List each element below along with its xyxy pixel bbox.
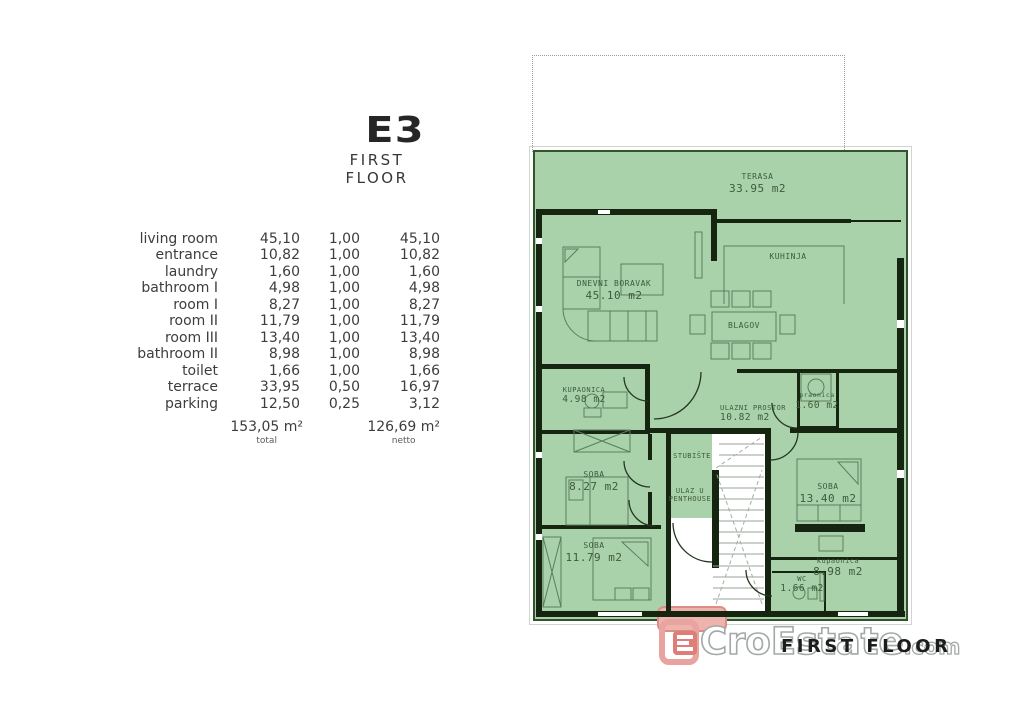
row-name: room III	[58, 330, 218, 346]
floor-title: FIRST FLOOR	[322, 151, 432, 187]
row-name: laundry	[58, 264, 218, 280]
room-label-ulaz-u-penthouse: ULAZ U PENTHOUSE	[662, 487, 718, 504]
watermark-floor-overlay: FIRST FLOOR	[781, 636, 951, 657]
room-label-soba-2: SOBA 11.79 m2	[559, 541, 629, 564]
croestate-watermark: CroEstate.com FIRST FLOOR	[655, 612, 1024, 672]
row-name: toilet	[58, 363, 218, 379]
row-name: terrace	[58, 379, 218, 395]
row-name: room II	[58, 313, 218, 329]
roof-outline-dotted	[532, 55, 845, 152]
row-name: entrance	[58, 247, 218, 263]
total-area: 153,05 m² total	[230, 419, 303, 446]
page: E3 FIRST FLOOR living room45,101,0045,10…	[0, 0, 1024, 724]
room-label-soba-1: SOBA 8.27 m2	[559, 470, 629, 493]
row-name: bathroom II	[58, 346, 218, 362]
row-name: bathroom I	[58, 280, 218, 296]
room-label-stubiste: STUBIŠTE	[664, 452, 720, 460]
room-label-dnevni-boravak: DNEVNI BORAVAK 45.10 m2	[563, 279, 665, 302]
room-label-praonica: praonica 1.60 m2	[794, 392, 840, 411]
row-name: parking	[58, 396, 218, 412]
netto-area: 126,69 m² netto	[367, 419, 440, 446]
area-table: living room45,101,0045,10 entrance10,821…	[58, 231, 440, 412]
row-name: living room	[58, 231, 218, 247]
croestate-logo-icon	[658, 616, 702, 668]
building-code-title: E3	[355, 110, 436, 151]
room-label-terasa: TERASA 33.95 m2	[715, 172, 800, 195]
room-label-wc: WC 1.66 m2	[779, 575, 825, 595]
room-label-kupaonica-1: KUPAONICA 4.98 m2	[548, 386, 620, 406]
row-name: room I	[58, 297, 218, 313]
room-label-soba-3: SOBA 13.40 m2	[793, 482, 863, 505]
room-label-blagov: BLAGOV	[715, 321, 773, 331]
entry-vestibule-area	[671, 518, 712, 612]
room-label-kuhinja: KUHINJA	[748, 252, 828, 262]
